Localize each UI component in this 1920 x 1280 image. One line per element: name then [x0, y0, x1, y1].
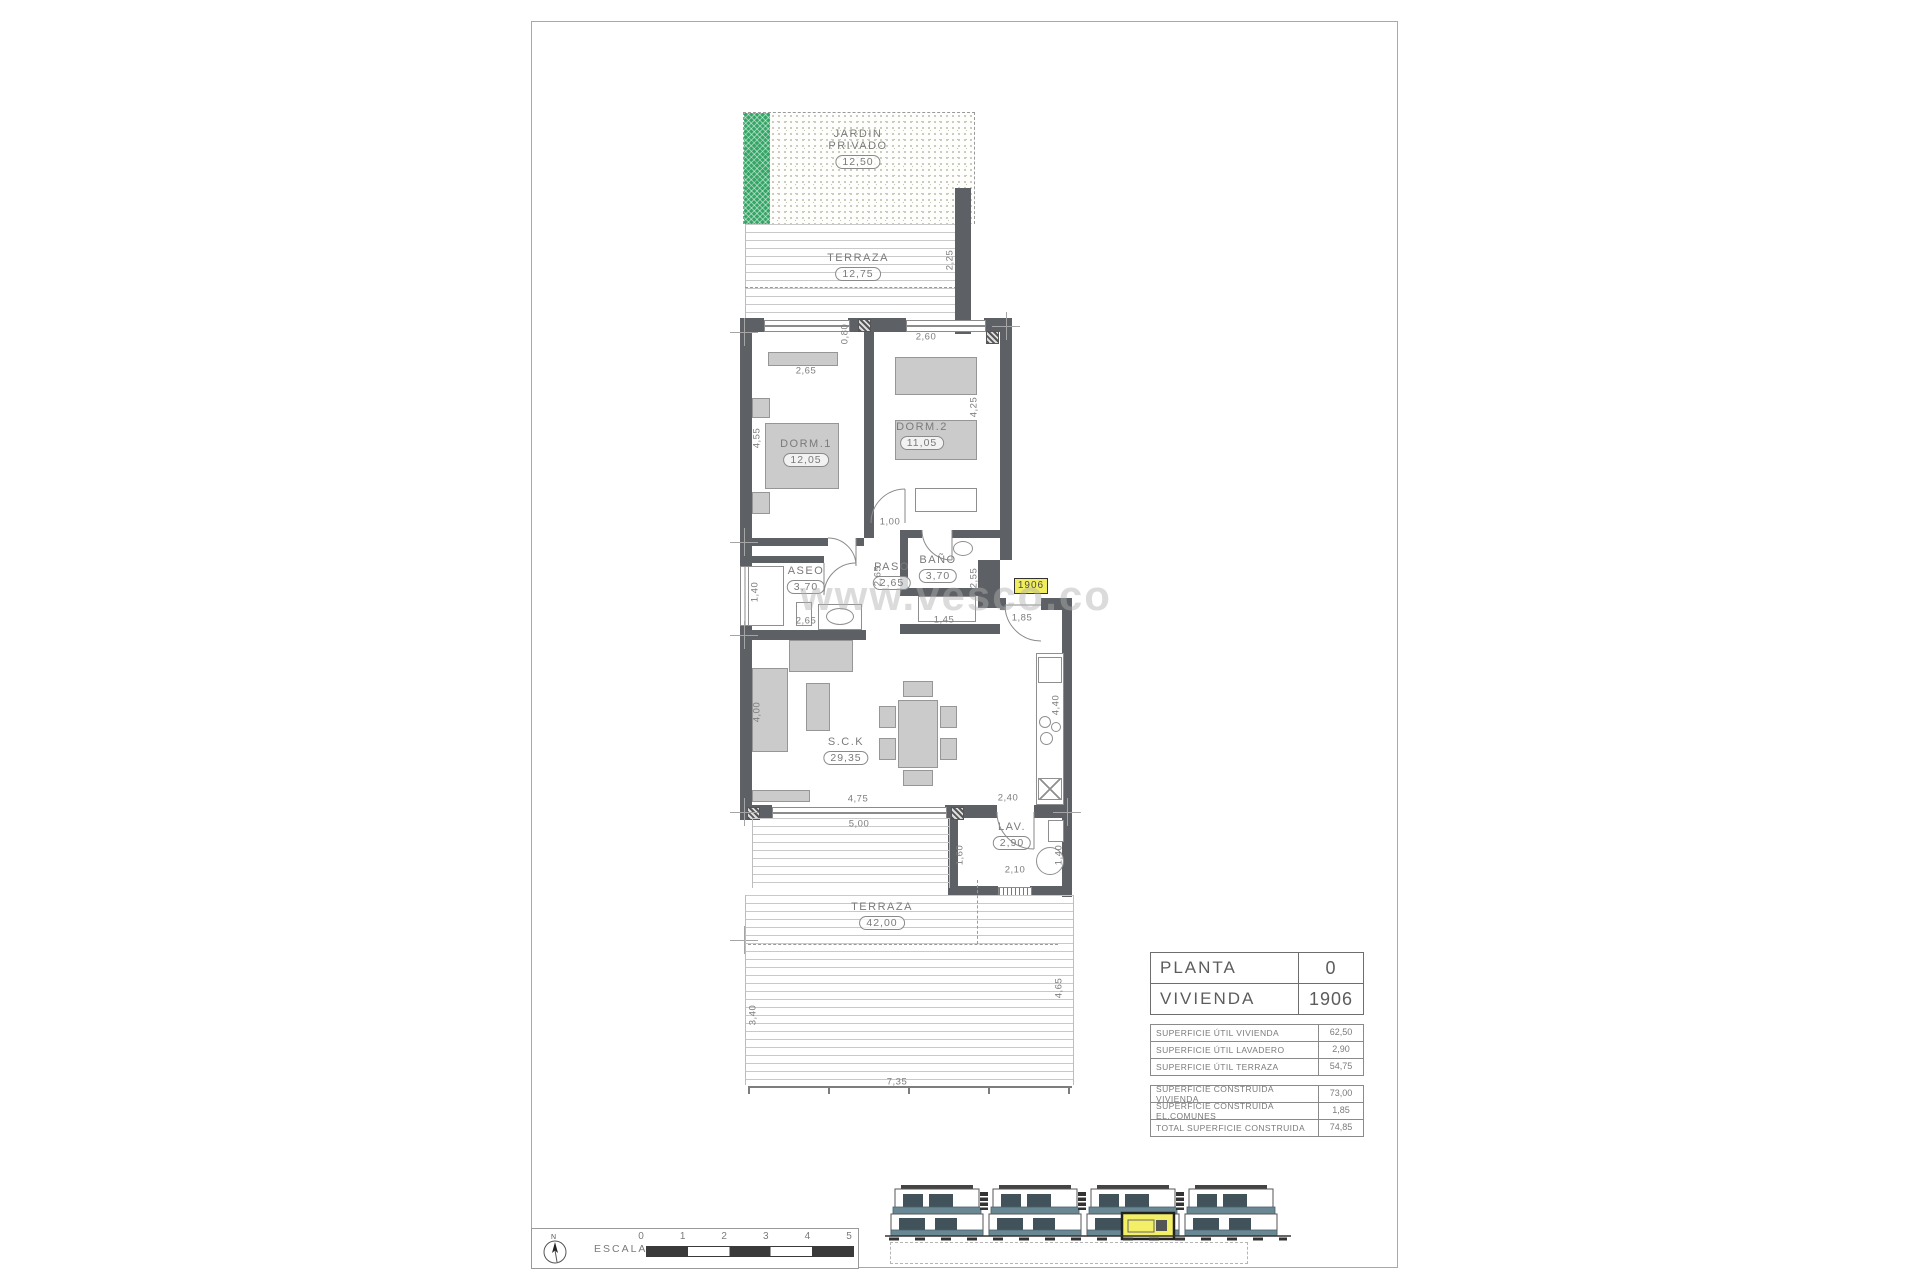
area-table-label: SUPERFICIE ÚTIL TERRAZA [1151, 1062, 1318, 1072]
coffee-table [806, 683, 830, 731]
wall-segment [864, 490, 874, 538]
area-table-label: SUPERFICIE ÚTIL VIVIENDA [1151, 1028, 1318, 1038]
room-name: TERRAZA [827, 252, 889, 264]
hob-burner [1051, 722, 1061, 732]
room-name: PRIVADO [828, 140, 887, 152]
column-hatch-marker [858, 319, 871, 332]
hob-burner [1039, 716, 1051, 728]
area-table-row: TOTAL SUPERFICIE CONSTRUIDA 74,85 [1150, 1119, 1364, 1137]
room-area: 12,75 [835, 267, 880, 281]
wall-segment [955, 188, 971, 334]
area-table-value: 73,00 [1318, 1086, 1363, 1102]
room-name: BAÑO [919, 554, 957, 566]
desk [915, 488, 977, 512]
dimension-label: 1,60 [955, 845, 966, 866]
room-area: 2,90 [993, 836, 1031, 850]
area-table-row: SUPERFICIE ÚTIL LAVADERO 2,90 [1150, 1041, 1364, 1059]
hob-burner [1040, 732, 1053, 745]
room-name: DORM.1 [780, 438, 832, 450]
scale-tick: 0 [636, 1231, 646, 1242]
wall-segment [864, 332, 874, 490]
column-hatch-marker [951, 807, 964, 820]
laundry-counter [1048, 820, 1064, 842]
wall-segment [752, 538, 828, 546]
nightstand [752, 398, 770, 418]
area-table-label: TOTAL SUPERFICIE CONSTRUIDA [1151, 1123, 1318, 1133]
grid-cross-marker [992, 312, 1020, 340]
tv-bench [752, 790, 810, 802]
terrace-dashed-line [745, 287, 957, 288]
dimension-label: 4,55 [752, 428, 763, 449]
dimension-label: 5,00 [849, 819, 870, 830]
scale-tick: 1 [678, 1231, 688, 1242]
scale-ticks: 012345 [636, 1231, 854, 1242]
terrace-dashed-line [977, 880, 978, 944]
room-label-jardin: JARDIN PRIVADO 12,50 [828, 128, 887, 170]
area-table-row: SUPERFICIE CONSTRUIDA EL.COMUNES 1,85 [1150, 1102, 1364, 1120]
dimension-label: 1,40 [1054, 845, 1065, 866]
scale-tick: 2 [719, 1231, 729, 1242]
dimension-label: 2,40 [998, 793, 1019, 804]
north-compass: N [538, 1231, 572, 1267]
wall-segment [908, 530, 922, 538]
room-name: JARDIN [828, 128, 887, 140]
window [764, 320, 850, 332]
wall-segment [900, 624, 1000, 634]
title-table: PLANTA 0 VIVIENDA 1906 [1150, 953, 1364, 1015]
title-table-value: 0 [1298, 953, 1363, 983]
room-label-terraza-bottom: TERRAZA 42,00 [851, 901, 913, 931]
scale-bar [646, 1246, 854, 1257]
built-area-table: SUPERFICIE CONSTRUIDA VIVIENDA 73,00 SUP… [1150, 1086, 1364, 1137]
chair [879, 706, 896, 728]
area-table-label: SUPERFICIE CONSTRUIDA EL.COMUNES [1151, 1101, 1318, 1121]
title-table-value: 1906 [1298, 984, 1363, 1014]
scale-tick: 3 [761, 1231, 771, 1242]
chair [903, 681, 933, 697]
terrace-railing [748, 1086, 1072, 1094]
title-table-row: VIVIENDA 1906 [1150, 983, 1364, 1015]
dimension-label: 4,40 [1051, 695, 1062, 716]
dimension-label: 2,65 [796, 366, 817, 377]
area-table-label: SUPERFICIE ÚTIL LAVADERO [1151, 1045, 1318, 1055]
area-table-value: 62,50 [1318, 1025, 1363, 1041]
area-table-value: 74,85 [1318, 1120, 1363, 1136]
area-table-value: 1,85 [1318, 1103, 1363, 1119]
wall-segment [948, 886, 998, 895]
scale-box: N ESCALA : 012345 [531, 1228, 859, 1269]
fridge [1038, 657, 1062, 683]
north-label: N [551, 1234, 556, 1241]
nightstand [752, 492, 770, 514]
kitchen-sink [1038, 778, 1062, 800]
chair [879, 738, 896, 760]
room-label-terraza-top: TERRAZA 12,75 [827, 252, 889, 282]
room-label-dorm1: DORM.1 12,05 [780, 438, 832, 468]
elevation-extent-dashed-box [890, 1242, 1248, 1264]
terrace-dashed-line [748, 944, 1058, 945]
grid-cross-marker [730, 528, 758, 556]
watermark: www.vesco.co [800, 572, 1140, 620]
dimension-label: 2,25 [945, 250, 956, 271]
room-label-sck: S.C.K 29,35 [823, 736, 868, 766]
garden-hedge-hatch [744, 113, 771, 224]
area-table-row: SUPERFICIE ÚTIL TERRAZA 54,75 [1150, 1058, 1364, 1076]
wardrobe [768, 352, 838, 366]
window [906, 320, 986, 332]
dimension-label: 1,40 [750, 582, 761, 603]
wall-segment [856, 538, 864, 546]
dimension-label: 2,10 [1005, 865, 1026, 876]
room-area: 12,50 [835, 155, 880, 169]
wall-segment [740, 630, 866, 640]
grid-cross-marker [730, 318, 758, 346]
dimension-label: 4,75 [848, 794, 869, 805]
area-table-row: SUPERFICIE ÚTIL VIVIENDA 62,50 [1150, 1024, 1364, 1042]
dimension-label: 3,40 [748, 1005, 759, 1026]
wall-segment [1000, 330, 1012, 560]
dimension-label: 1,00 [880, 517, 901, 528]
dining-table [898, 700, 938, 768]
dimension-label: 4,25 [969, 397, 980, 418]
chair [940, 738, 957, 760]
title-table-row: PLANTA 0 [1150, 952, 1364, 984]
area-table-value: 2,90 [1318, 1042, 1363, 1058]
room-name: LAV. [993, 821, 1031, 833]
area-table-value: 54,75 [1318, 1059, 1363, 1075]
room-area: 11,05 [900, 436, 945, 450]
room-name: TERRAZA [851, 901, 913, 913]
floor-plan-sheet: JARDIN PRIVADO 12,50 TERRAZA 12,75 [0, 0, 1920, 1280]
bed-single [895, 357, 977, 395]
dimension-label: 7,35 [887, 1077, 908, 1088]
title-table-label: PLANTA [1151, 958, 1298, 978]
chair [940, 706, 957, 728]
wall-segment [848, 318, 906, 332]
dimension-label: 0,80 [840, 324, 851, 345]
chair [903, 770, 933, 786]
wall-segment [752, 556, 824, 563]
title-table-label: VIVIENDA [1151, 989, 1298, 1009]
sofa-chaise [789, 640, 853, 672]
room-name: S.C.K [823, 736, 868, 748]
wall-segment [1030, 886, 1072, 895]
dimension-label: 4,65 [1054, 978, 1065, 999]
room-label-lav: LAV. 2,90 [993, 821, 1031, 851]
scale-tick: 4 [802, 1231, 812, 1242]
room-area: 12,05 [783, 453, 828, 467]
dimension-label: 2,60 [916, 332, 937, 343]
room-label-dorm2: DORM.2 11,05 [896, 421, 948, 451]
scale-tick: 5 [844, 1231, 854, 1242]
room-name: DORM.2 [896, 421, 948, 433]
building-elevation [885, 1183, 1295, 1249]
useful-area-table: SUPERFICIE ÚTIL VIVIENDA 62,50 SUPERFICI… [1150, 1025, 1364, 1076]
wall-segment [952, 530, 1000, 538]
dimension-label: 4,00 [752, 702, 763, 723]
room-area: 29,35 [823, 751, 868, 765]
room-area: 42,00 [859, 916, 904, 930]
